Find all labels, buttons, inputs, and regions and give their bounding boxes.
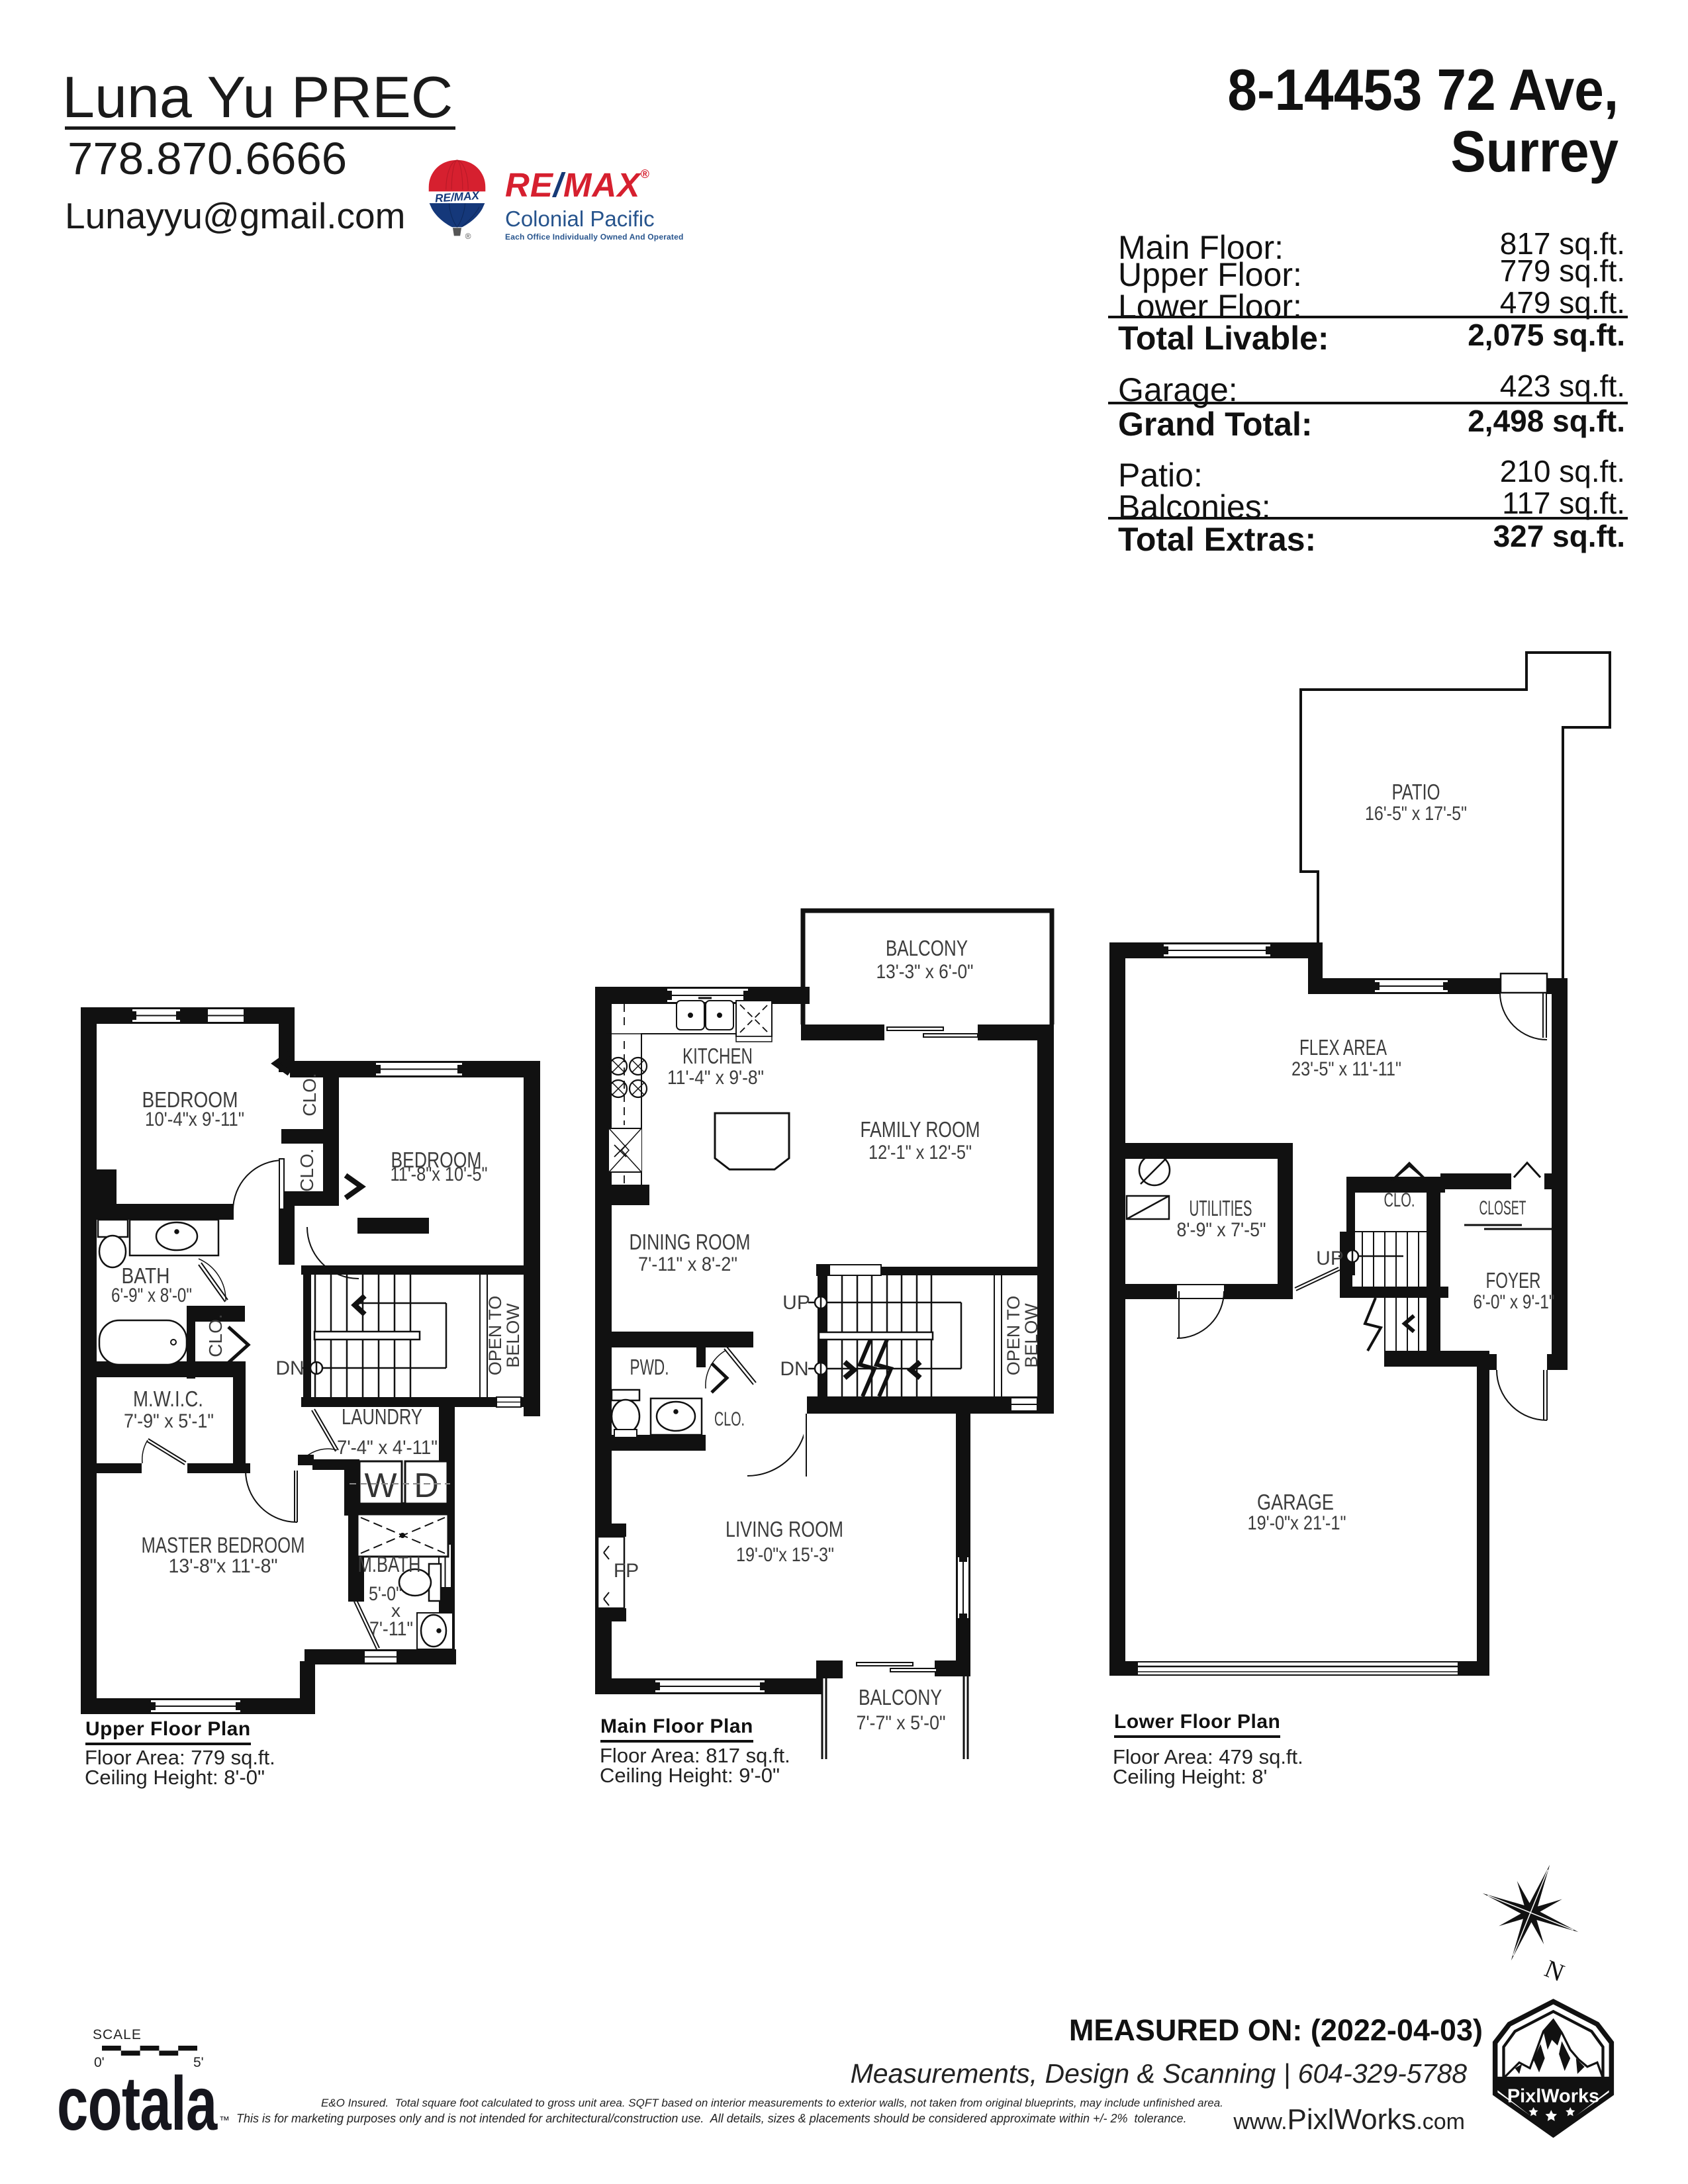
svg-text:D: D <box>414 1467 439 1505</box>
svg-text:N: N <box>1540 1955 1568 1987</box>
svg-text:GARAGE: GARAGE <box>1257 1490 1334 1514</box>
svg-text:DN: DN <box>275 1357 304 1379</box>
svg-text:11'-8"x 10'-5": 11'-8"x 10'-5" <box>391 1163 488 1185</box>
svg-text:10'-4"x 9'-11": 10'-4"x 9'-11" <box>145 1109 244 1130</box>
svg-text:CLO.: CLO. <box>205 1314 226 1357</box>
svg-text:MASTER BEDROOM: MASTER BEDROOM <box>142 1533 305 1557</box>
svg-text:LIVING ROOM: LIVING ROOM <box>726 1517 843 1541</box>
svg-text:19'-0"x 21'-1": 19'-0"x 21'-1" <box>1248 1512 1346 1534</box>
svg-text:7'-4" x 4'-11": 7'-4" x 4'-11" <box>337 1437 438 1459</box>
svg-text:M.BATH: M.BATH <box>358 1552 421 1576</box>
svg-text:8'-9" x 7'-5": 8'-9" x 7'-5" <box>1177 1219 1266 1241</box>
svg-text:BALCONY: BALCONY <box>859 1685 942 1709</box>
svg-text:FOYER: FOYER <box>1486 1268 1541 1293</box>
svg-text:UP: UP <box>1316 1248 1344 1269</box>
svg-text:DINING ROOM: DINING ROOM <box>630 1230 751 1254</box>
svg-text:PATIO: PATIO <box>1392 780 1440 804</box>
svg-text:12'-1" x 12'-5": 12'-1" x 12'-5" <box>868 1142 972 1163</box>
svg-text:CLO.: CLO. <box>299 1073 320 1116</box>
svg-text:6'-0" x 9'-1": 6'-0" x 9'-1" <box>1474 1291 1555 1313</box>
svg-text:7'-9" x 5'-1": 7'-9" x 5'-1" <box>124 1410 214 1432</box>
svg-text:7'-11" x 8'-2": 7'-11" x 8'-2" <box>638 1253 737 1275</box>
svg-text:19'-0"x 15'-3": 19'-0"x 15'-3" <box>736 1544 834 1566</box>
svg-text:UP: UP <box>782 1292 810 1314</box>
svg-text:CLOSET: CLOSET <box>1479 1197 1526 1219</box>
svg-text:23'-5" x 11'-11": 23'-5" x 11'-11" <box>1291 1058 1401 1080</box>
svg-text:CLO.: CLO. <box>297 1148 317 1191</box>
svg-text:CLO.: CLO. <box>714 1408 745 1430</box>
svg-text:7'-11": 7'-11" <box>369 1618 413 1640</box>
svg-text:6'-9" x 8'-0": 6'-9" x 8'-0" <box>111 1285 192 1306</box>
svg-text:13'-3" x 6'-0": 13'-3" x 6'-0" <box>876 961 974 983</box>
svg-text:FLEX AREA: FLEX AREA <box>1299 1035 1387 1060</box>
svg-text:LAUNDRY: LAUNDRY <box>342 1404 422 1429</box>
svg-text:CLO.: CLO. <box>1384 1189 1415 1211</box>
svg-text:M.W.I.C.: M.W.I.C. <box>133 1387 203 1411</box>
svg-text:11'-4" x 9'-8": 11'-4" x 9'-8" <box>667 1067 764 1089</box>
svg-text:BELOW: BELOW <box>1021 1303 1041 1368</box>
svg-text:BELOW: BELOW <box>503 1303 523 1368</box>
svg-text:7'-7" x 5'-0": 7'-7" x 5'-0" <box>857 1712 946 1734</box>
svg-text:PixlWorks: PixlWorks <box>1507 2085 1599 2107</box>
svg-text:OPEN TO: OPEN TO <box>485 1296 505 1376</box>
svg-text:16'-5" x 17'-5": 16'-5" x 17'-5" <box>1365 803 1467 825</box>
svg-text:FP: FP <box>614 1560 639 1582</box>
svg-text:PWD.: PWD. <box>630 1355 669 1379</box>
svg-text:KITCHEN: KITCHEN <box>682 1044 753 1068</box>
svg-text:W: W <box>364 1467 397 1505</box>
svg-text:13'-8"x 11'-8": 13'-8"x 11'-8" <box>169 1555 278 1577</box>
svg-text:OPEN TO: OPEN TO <box>1004 1296 1023 1376</box>
svg-text:BALCONY: BALCONY <box>886 936 968 960</box>
svg-text:®: ® <box>465 232 471 241</box>
svg-text:FAMILY ROOM: FAMILY ROOM <box>861 1117 980 1142</box>
svg-text:UTILITIES: UTILITIES <box>1190 1196 1252 1220</box>
svg-text:DN: DN <box>780 1358 808 1380</box>
